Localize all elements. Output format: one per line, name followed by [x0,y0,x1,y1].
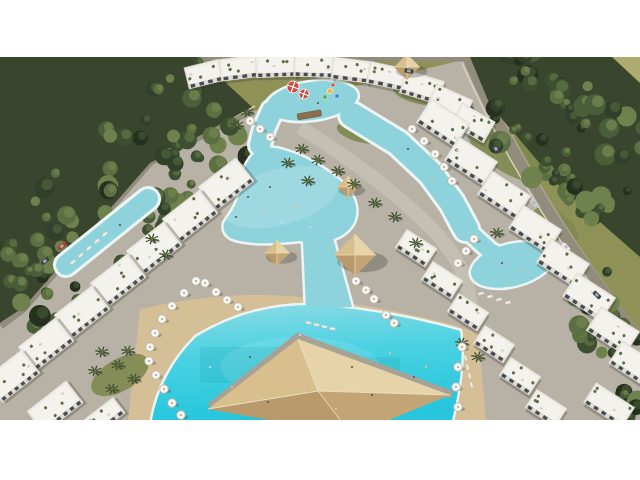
tree [521,166,543,188]
tree [595,204,604,213]
tree [57,206,76,225]
tree [14,252,29,267]
tree [140,114,151,125]
tree [206,102,222,118]
swimmer [431,176,433,178]
swimmer [209,366,211,368]
tree [41,288,53,300]
tree [602,267,612,277]
screenshot-root [0,0,640,480]
swimmer [267,401,269,403]
tree [521,132,532,143]
swimmer [413,376,415,378]
swimmer [407,148,409,150]
tree [490,99,503,112]
window [274,73,278,77]
window [233,75,238,79]
water-slide [334,93,339,98]
tree [115,128,133,146]
tree [604,101,622,119]
swimmer [297,98,299,100]
tree [549,176,559,186]
swimmer [501,262,503,264]
tree [520,66,530,76]
tree [509,126,517,134]
tree [581,118,591,128]
window [282,73,286,77]
swimmer [281,222,283,224]
swimmer [351,366,353,368]
tree [203,127,221,145]
swimmer [249,356,251,358]
resort-scene [0,57,640,420]
tree [133,130,148,145]
swimmer [299,334,301,336]
swimmer [263,212,265,214]
swimmer [309,226,311,228]
building-block [256,57,299,81]
tree [559,165,569,175]
window [296,72,300,76]
tree [584,211,600,227]
tree [103,129,117,143]
tree [565,104,574,113]
tree [541,156,552,167]
water-slide [327,88,333,94]
window [320,73,324,77]
tree [596,347,608,359]
window [242,74,247,78]
swimmer [247,196,249,198]
tree [535,133,548,146]
window [343,76,348,80]
window [266,73,270,77]
tree [564,195,575,206]
tree [12,293,30,311]
building-block [294,57,337,81]
tree [614,149,630,165]
letterbox-top [0,0,640,57]
swimmer [317,388,319,390]
water-slide [323,95,328,100]
tree [30,233,45,248]
striped-mushroom-fountain [287,81,299,93]
tree [104,184,117,197]
tree [594,144,616,166]
window [258,73,262,77]
window [312,73,316,77]
tree [569,315,590,336]
tree [191,150,203,162]
swimmer [317,102,319,104]
swimmer [371,394,373,396]
swimmer [521,270,523,272]
tree [561,147,571,157]
resort-aerial-render [0,57,640,420]
swimmer [281,374,283,376]
swimmer [269,186,271,188]
tree [102,161,117,176]
swimmer [295,206,297,208]
swimmer [235,216,237,218]
window [333,75,338,79]
window [304,73,308,77]
tree [522,75,539,92]
tree [187,180,196,189]
swimmer [119,224,121,226]
tree [1,247,14,260]
tree [155,148,173,166]
tree [599,118,619,138]
tree [34,177,55,198]
tree [550,90,564,104]
letterbox-bottom [0,420,640,480]
tree [70,281,81,292]
tree [31,197,40,206]
tree [12,276,28,292]
tree [187,124,197,134]
swimmer [231,386,233,388]
tree [575,191,596,212]
swimmer [335,408,337,410]
swimmer [389,352,391,354]
swimmer [425,366,427,368]
tree [51,168,60,177]
tree [153,84,164,95]
tree [166,74,174,82]
tree [24,266,33,275]
tree [42,213,51,222]
water-slide [331,83,335,87]
window [362,78,367,82]
window [223,76,228,80]
tree [583,81,593,91]
tree [167,130,180,143]
window [352,77,357,81]
tree [584,94,605,115]
swimmer [99,240,101,242]
tree [46,223,63,240]
striped-mushroom-fountain [299,89,309,99]
tree [182,88,202,108]
window [252,73,257,77]
tree [509,76,518,85]
tree [623,187,632,196]
